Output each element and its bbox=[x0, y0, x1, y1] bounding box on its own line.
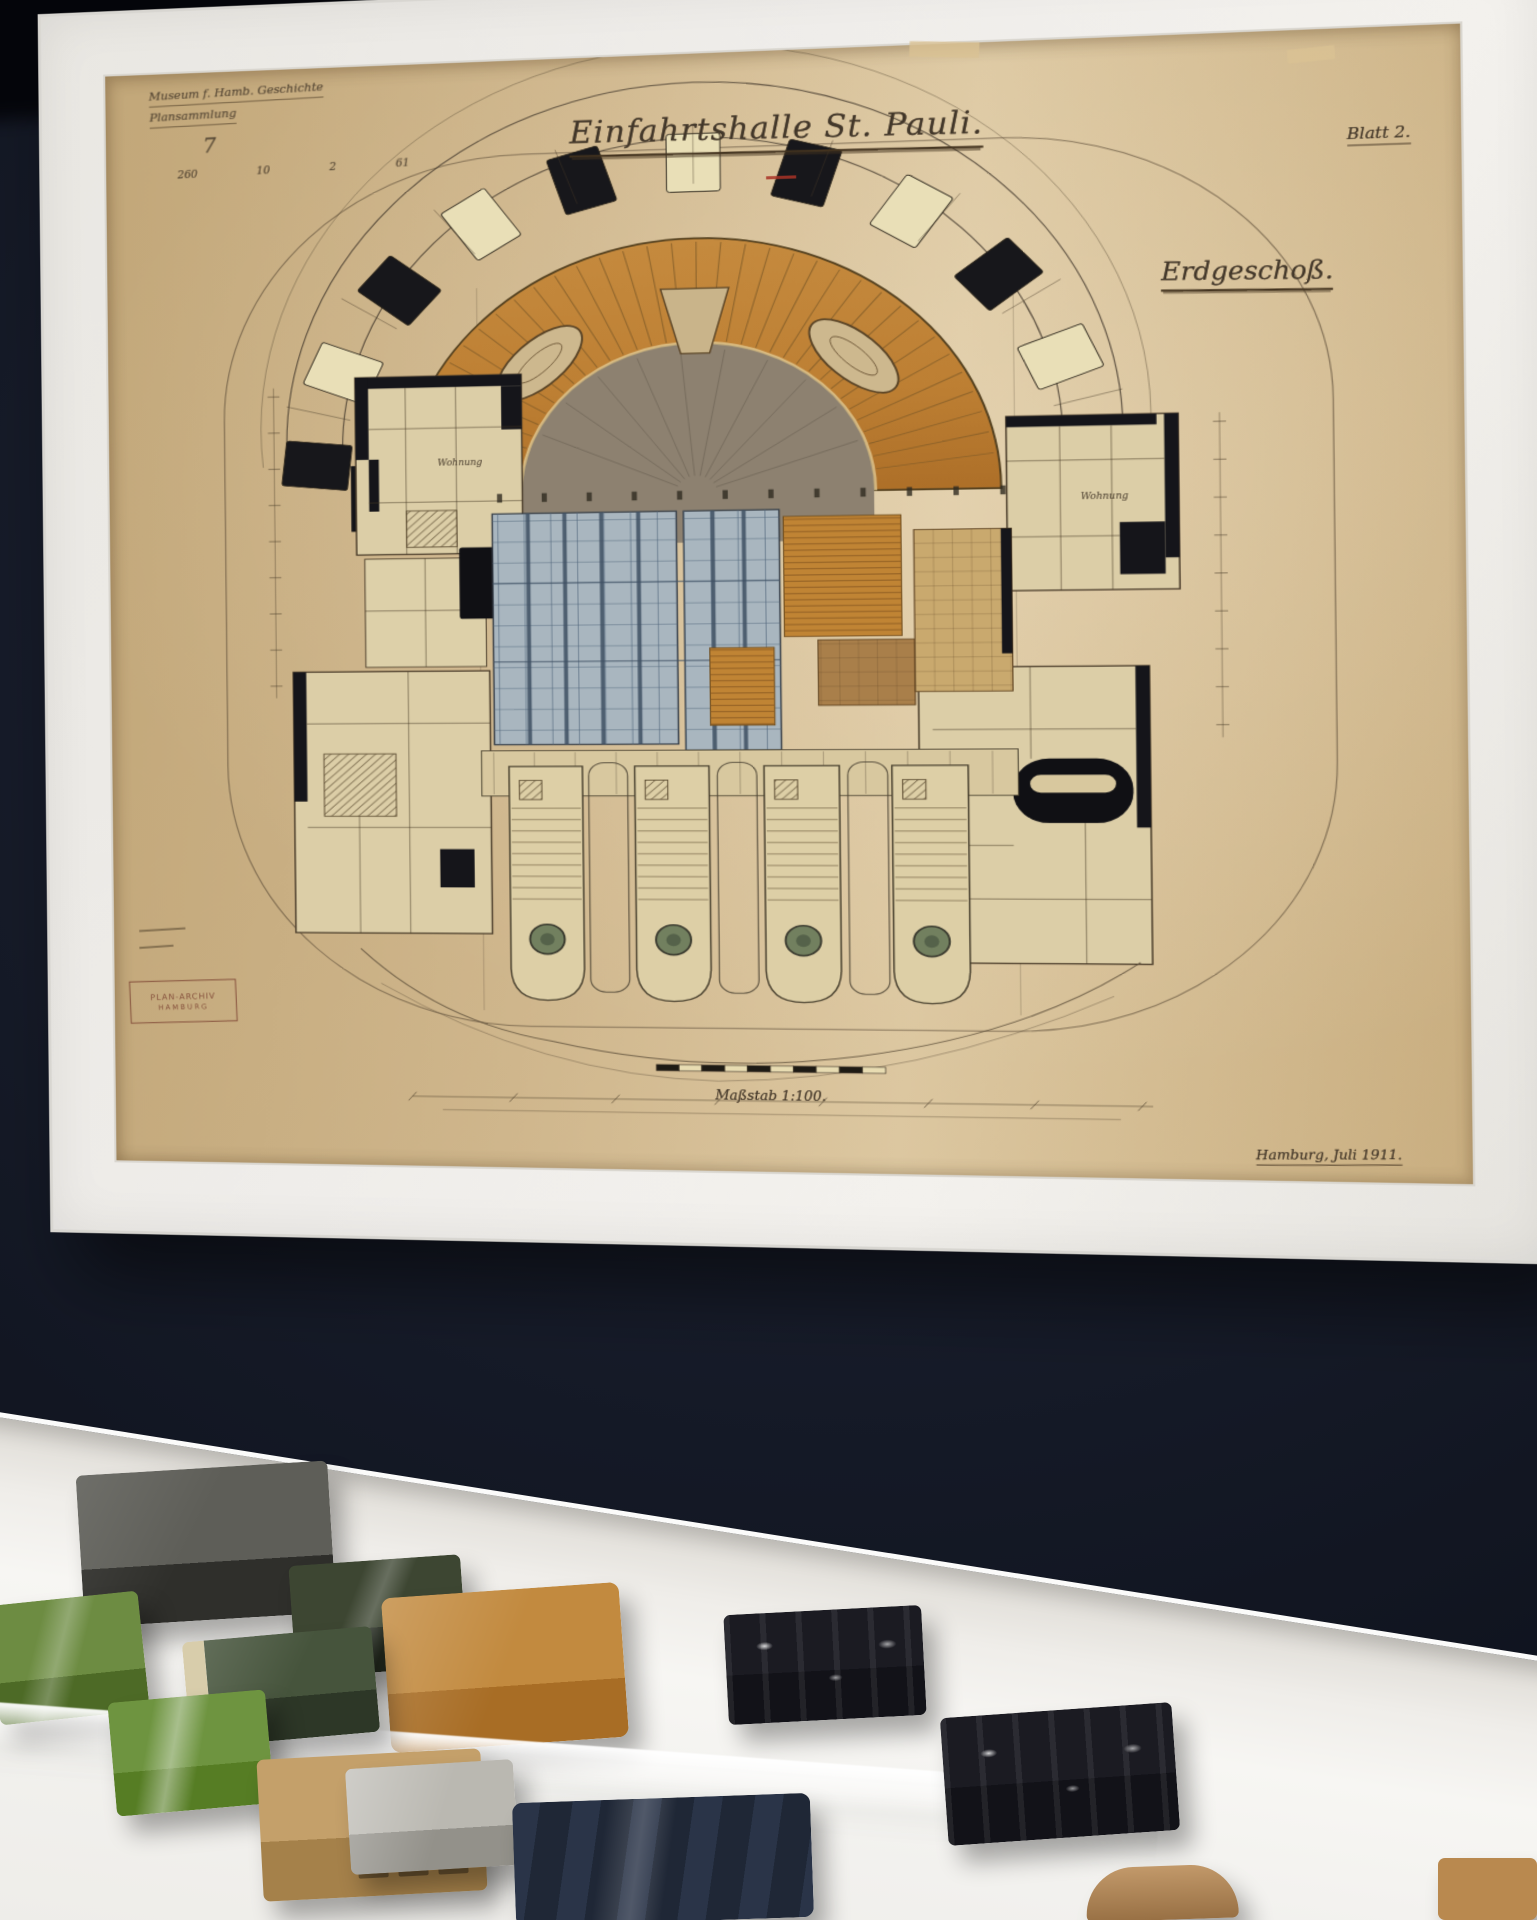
archive-stamp-line1: PLAN-ARCHIV bbox=[131, 990, 236, 1002]
tile-sample-orange bbox=[381, 1582, 629, 1753]
tape-patch bbox=[909, 41, 979, 58]
piers bbox=[509, 762, 971, 1005]
drawing-paper: Einfahrtshalle St. Pauli. Blatt 2. Erdge… bbox=[105, 24, 1473, 1185]
floor-plan-svg bbox=[105, 24, 1473, 1185]
room-label-right-wing: Wohnung bbox=[1081, 491, 1129, 502]
scale-bar bbox=[656, 1064, 885, 1073]
inventory-stamp: Museum f. Hamb. Geschichte Plansammlung … bbox=[149, 71, 410, 186]
tile-sample-bright-green bbox=[107, 1689, 274, 1816]
tile-sample-silver bbox=[345, 1759, 519, 1875]
ridge-tile-sample-black-left bbox=[723, 1605, 926, 1725]
archive-stamp-line2: HAMBURG bbox=[131, 1001, 236, 1012]
floor-label: Erdgeschoß. bbox=[1161, 255, 1334, 292]
date-signature: Hamburg, Juli 1911. bbox=[1255, 1147, 1402, 1166]
room-label-left-wing: Wohnung bbox=[437, 457, 482, 468]
scale-label: Maßstab 1:100. bbox=[715, 1087, 826, 1104]
sheet-label: Blatt 2. bbox=[1347, 122, 1411, 147]
archive-stamp: PLAN-ARCHIV HAMBURG bbox=[129, 978, 238, 1023]
curved-tile-sample-navy bbox=[512, 1793, 814, 1920]
picture-frame: Einfahrtshalle St. Pauli. Blatt 2. Erdge… bbox=[38, 0, 1537, 1265]
block-sample-corner-tan bbox=[1438, 1858, 1537, 1920]
lower-left-block bbox=[293, 671, 492, 934]
ridge-tile-sample-black-right bbox=[940, 1702, 1180, 1846]
pier-shaft-circles bbox=[530, 924, 950, 956]
inventory-stamp-line2: Plansammlung bbox=[149, 102, 237, 128]
museum-photo-scene: Einfahrtshalle St. Pauli. Blatt 2. Erdge… bbox=[0, 0, 1537, 1920]
